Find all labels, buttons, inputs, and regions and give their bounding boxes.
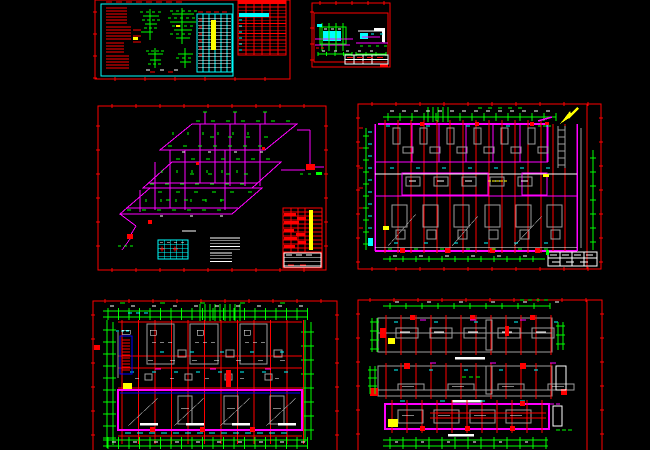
sheet-axonometric-piping-diagram[interactable] <box>96 104 328 272</box>
sheet-floor-plan-a[interactable] <box>356 102 603 271</box>
sheet-strip-plans[interactable] <box>356 298 604 450</box>
sheet-detail-drawings[interactable] <box>310 1 390 67</box>
sheet-floor-plan-b[interactable] <box>91 299 339 450</box>
sheet-riser-diagrams-and-schedules[interactable] <box>93 0 290 81</box>
drawing-canvas[interactable] <box>0 0 650 450</box>
cad-viewport[interactable] <box>0 0 650 450</box>
